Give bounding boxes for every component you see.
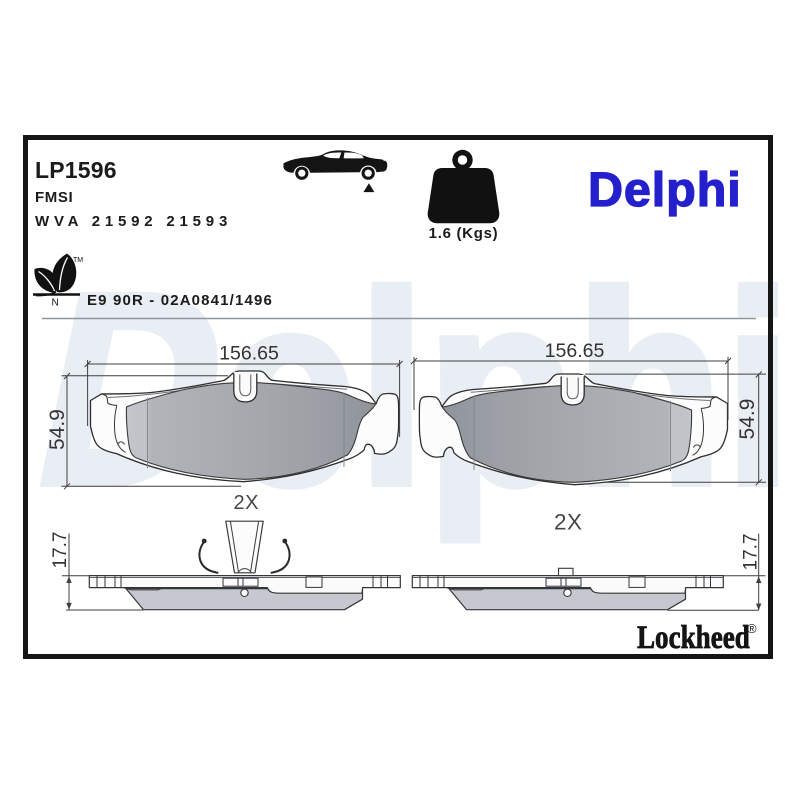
svg-text:17.7: 17.7 — [741, 534, 762, 571]
svg-text:17.7: 17.7 — [50, 532, 71, 569]
svg-text:156.65: 156.65 — [219, 343, 279, 365]
svg-text:1.6 (Kgs): 1.6 (Kgs) — [429, 225, 499, 242]
svg-text:2X: 2X — [554, 510, 583, 535]
svg-text:156.65: 156.65 — [545, 340, 605, 362]
svg-text:TM: TM — [73, 257, 83, 264]
svg-text:54.9: 54.9 — [736, 399, 759, 440]
svg-text:2X: 2X — [234, 492, 259, 514]
svg-text:54.9: 54.9 — [46, 409, 69, 450]
svg-text:N: N — [52, 298, 59, 309]
